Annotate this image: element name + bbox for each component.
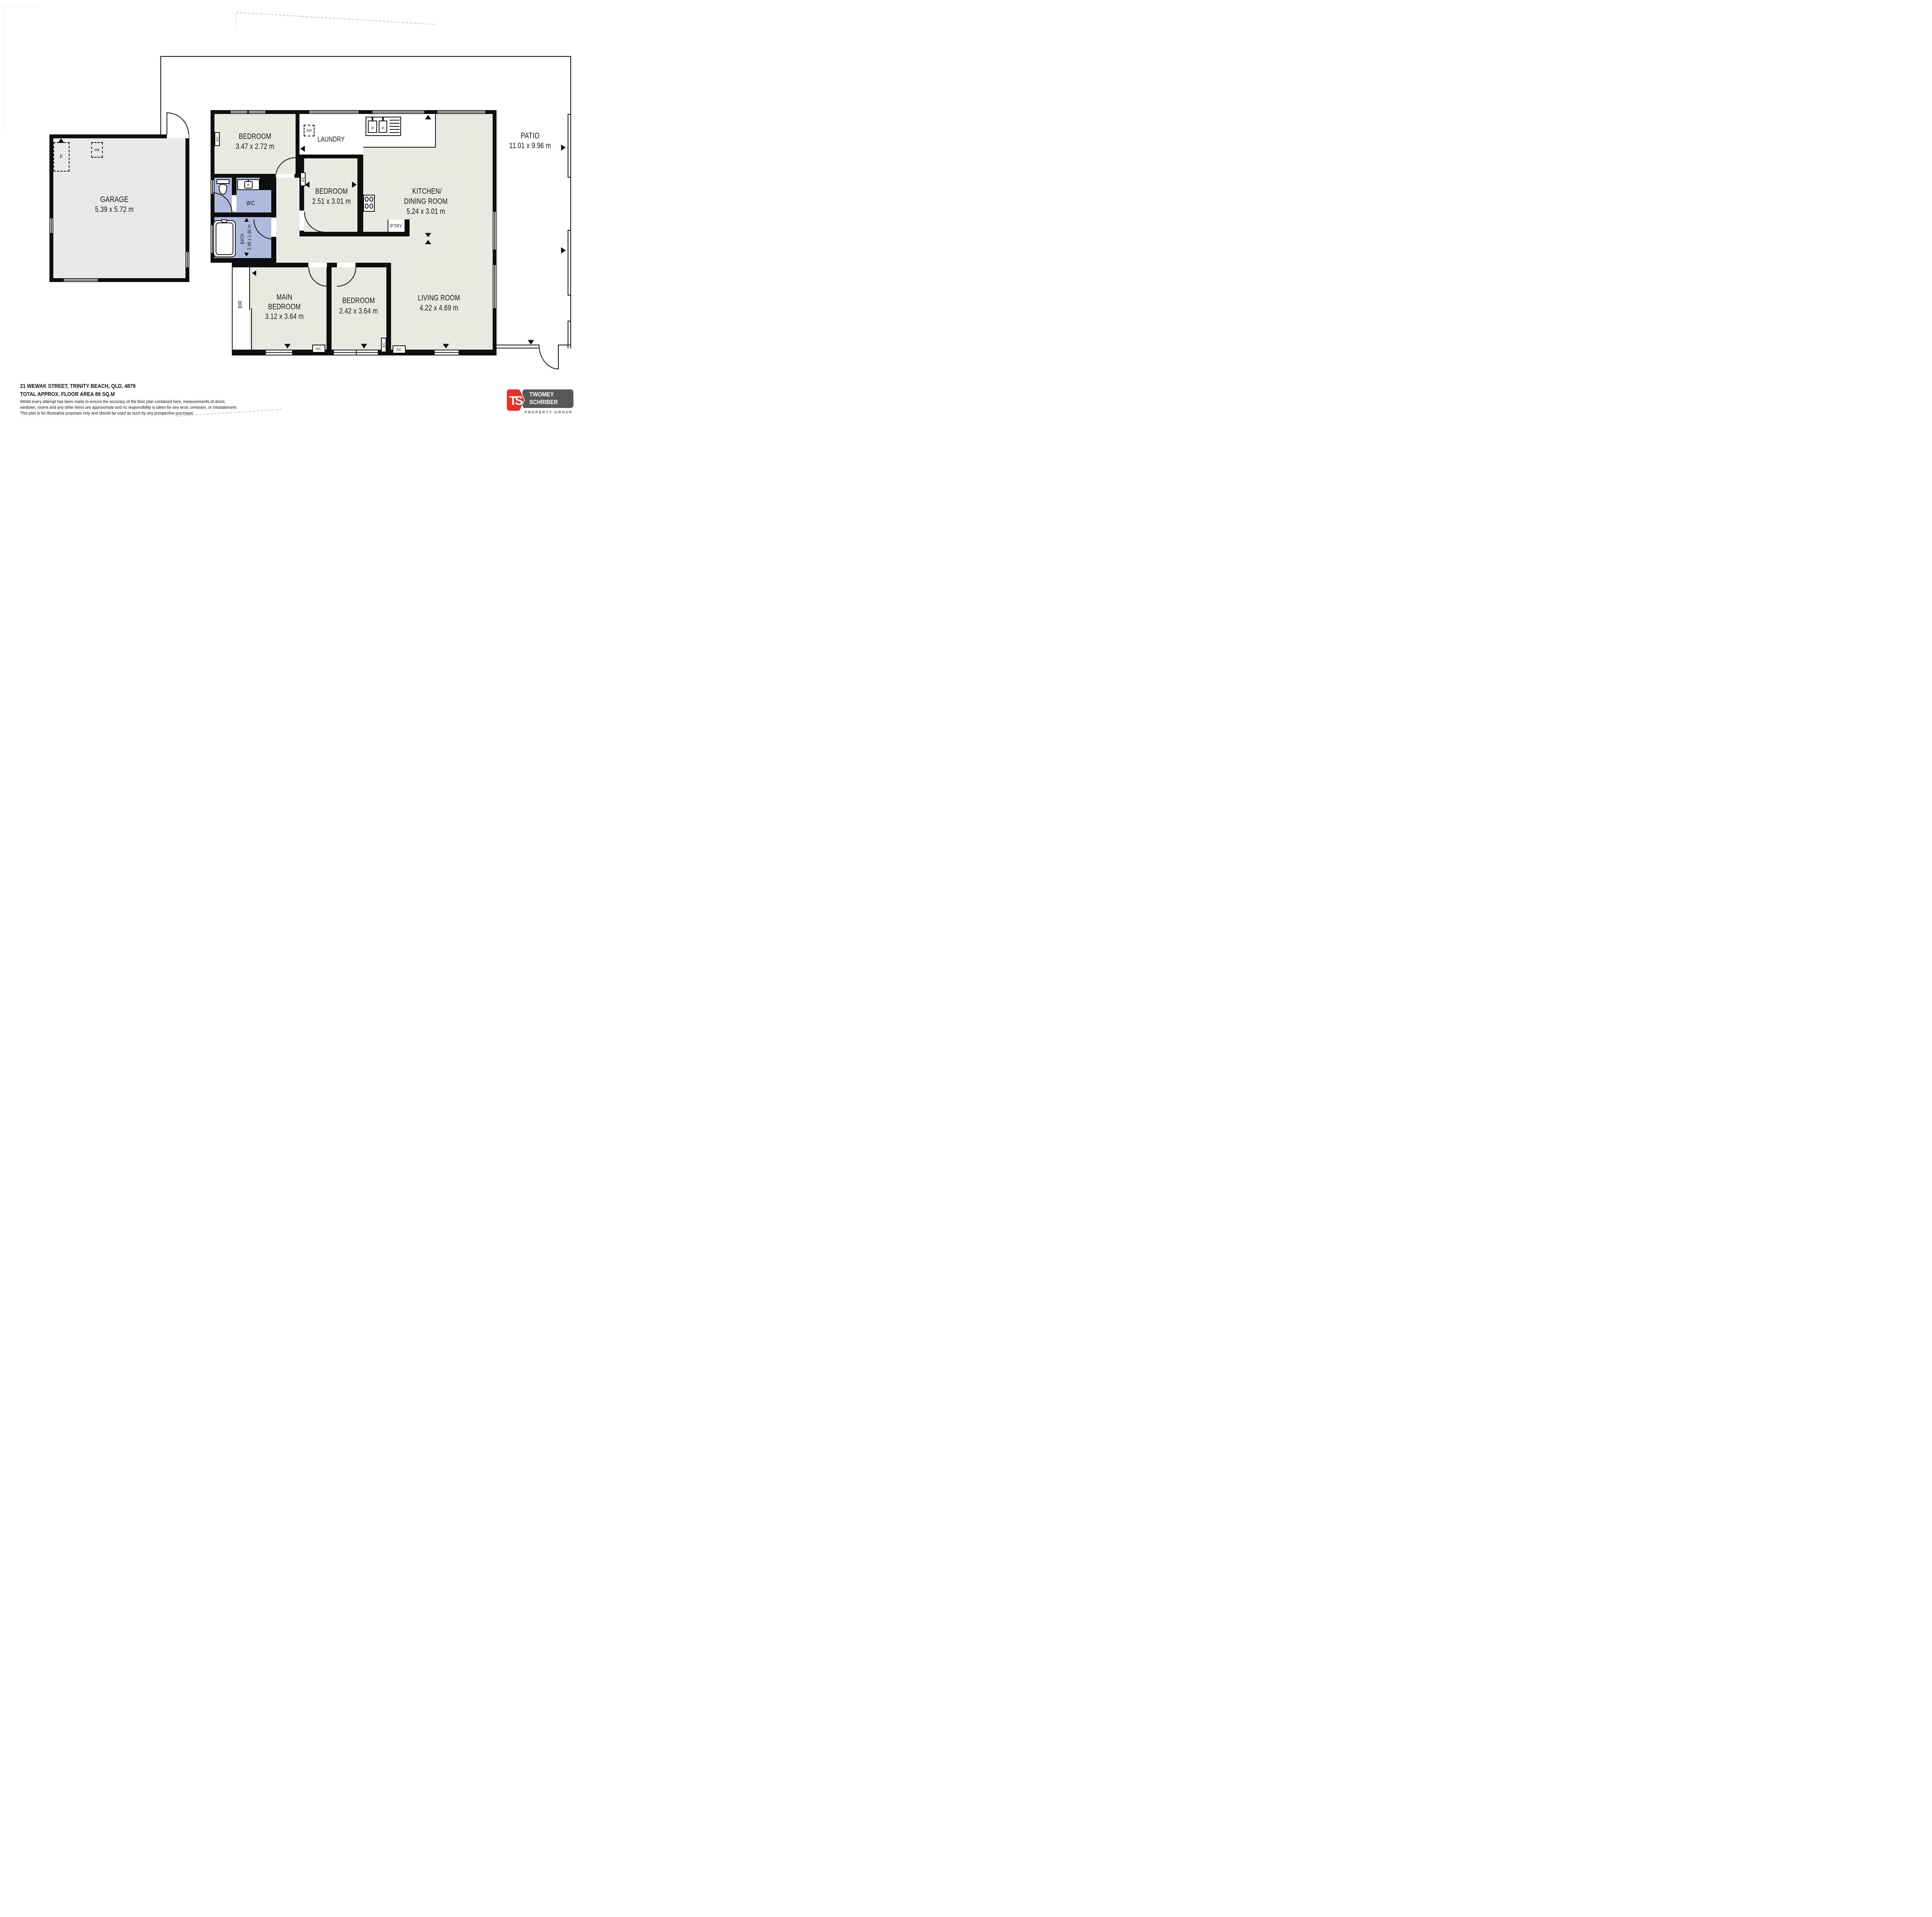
- marker-triangle-left: [300, 146, 305, 152]
- window-tick: [568, 321, 571, 321]
- door-opening: [308, 263, 327, 267]
- patio-outline-top: [160, 56, 571, 57]
- sink-drain-icon: [382, 127, 384, 129]
- boundary-line: [3, 7, 3, 129]
- patio-outline-left: [160, 56, 161, 135]
- bedroom-bottom-dims: 2.42 x 3.64 m: [339, 307, 378, 316]
- marker-triangle-left: [252, 270, 256, 276]
- logo-monogram: TS: [509, 394, 523, 408]
- main-bedroom-name-line1: MAIN: [277, 293, 293, 302]
- patio-rail: [558, 345, 571, 345]
- washing-machine-label: WM: [95, 148, 100, 152]
- window: [372, 110, 424, 114]
- bath-name: BATH: [240, 233, 245, 244]
- floor-area-line: TOTAL APPROX. FLOOR AREA 89 SQ.M: [20, 391, 115, 398]
- vanity-drain-icon: [247, 184, 249, 186]
- wall: [49, 134, 53, 282]
- door-opening: [232, 195, 236, 211]
- ac-label: A/C: [382, 342, 386, 348]
- logo-name-line1: TWOMEY: [529, 391, 554, 398]
- window-tick: [568, 114, 571, 115]
- disclaimer-line: windows, rooms and any other items are a…: [20, 405, 237, 410]
- marker-triangle-down: [528, 340, 534, 345]
- wall: [405, 219, 410, 236]
- washing-machine-label: WM: [307, 129, 312, 133]
- patio-dims: 11.01 x 9.96 m: [509, 142, 551, 151]
- toilet-cistern: [216, 179, 230, 184]
- window: [437, 110, 485, 114]
- wall: [232, 178, 236, 195]
- boundary-line: [236, 12, 236, 30]
- wall: [299, 155, 363, 158]
- ac-unit: A/C: [214, 132, 220, 146]
- vanity-faucet-icon: [248, 179, 249, 182]
- window: [49, 218, 53, 233]
- sink-drainer-icon: [389, 120, 400, 134]
- logo-name-line2: SCHRIBER: [529, 399, 558, 406]
- ac-label: A/C: [301, 177, 305, 182]
- garage-door-leaf: [167, 112, 167, 134]
- ac-unit: A/C: [381, 338, 386, 352]
- window: [309, 110, 359, 114]
- fridge-label: F: [60, 154, 63, 160]
- marker-triangle-up: [425, 240, 431, 244]
- living-dims: 4.22 x 4.69 m: [420, 304, 458, 313]
- window-tick: [568, 230, 571, 231]
- kitchen-name-line2: DINING ROOM: [404, 197, 448, 206]
- ac-unit: A/C: [312, 345, 325, 353]
- window: [185, 252, 189, 267]
- kitchen-dims: 5.24 x 3.01 m: [406, 207, 445, 216]
- wc-name: WC: [247, 200, 255, 207]
- wall: [299, 232, 410, 236]
- bath-dims: 2.46 x 1.60 m: [247, 224, 252, 250]
- sink-faucet-icon: [382, 117, 384, 121]
- patio-window-line: [568, 230, 568, 296]
- window: [231, 110, 247, 114]
- bedroom-bottom-name: BEDROOM: [342, 297, 375, 306]
- sink-drain-icon: [371, 127, 374, 129]
- logo-monogram-tag: TS: [506, 389, 525, 412]
- agency-logo: TWOMEY SCHRIBER TS PROPERTY GROUP: [506, 389, 577, 417]
- window: [64, 278, 98, 282]
- marker-triangle-left: [305, 182, 310, 188]
- wall: [211, 258, 276, 263]
- main-bedroom-name-line2: BEDROOM: [268, 303, 301, 312]
- logo-banner: TWOMEY SCHRIBER: [522, 389, 573, 408]
- garage-dims: 5.39 x 5.72 m: [95, 206, 134, 214]
- burner-icon: [369, 197, 373, 202]
- window: [211, 180, 214, 194]
- window-tick: [568, 177, 571, 178]
- burner-icon: [365, 197, 369, 202]
- burner-icon: [369, 204, 373, 209]
- window-tick: [568, 295, 571, 296]
- kitchen-name-line1: KITCHEN/: [412, 187, 442, 196]
- living-name: LIVING ROOM: [418, 294, 460, 303]
- address-line: 21 WEWAK STREET, TRINITY BEACH, QLD, 487…: [20, 383, 136, 389]
- sink-faucet-icon: [372, 117, 373, 121]
- patio-name: PATIO: [520, 131, 539, 141]
- wall: [211, 212, 276, 217]
- marker-triangle-up: [244, 218, 249, 222]
- window: [249, 110, 265, 114]
- patio-window-line: [568, 114, 568, 178]
- pantry-name: P'TRY: [390, 223, 402, 229]
- door-opening: [337, 263, 355, 267]
- bedroom-top-name: BEDROOM: [239, 133, 271, 141]
- ac-unit: A/C: [393, 345, 406, 353]
- bir-name: BIR: [237, 301, 243, 308]
- bir-closet: [233, 267, 249, 350]
- marker-triangle-down: [443, 344, 449, 348]
- logo-tagline: PROPERTY GROUP: [524, 410, 573, 415]
- boundary-line: [3, 7, 37, 7]
- bir-slider-line: [251, 308, 252, 350]
- bedroom-mid-dims: 2.51 x 3.01 m: [312, 197, 351, 206]
- marker-triangle-down: [361, 344, 367, 348]
- marker-triangle-up: [425, 115, 431, 119]
- disclaimer-line: Whilst every attempt has been made to en…: [20, 399, 226, 404]
- ac-label: A/C: [396, 348, 402, 352]
- wall: [386, 263, 391, 350]
- marker-triangle-right: [352, 182, 357, 188]
- window: [357, 350, 378, 355]
- wall: [296, 110, 299, 178]
- wall: [357, 155, 363, 236]
- house-edge-line: [232, 263, 233, 355]
- window: [493, 212, 497, 250]
- patio-rail: [497, 345, 539, 345]
- marker-triangle-down: [244, 253, 249, 257]
- boundary-dashed-line: [236, 12, 435, 25]
- bir-slider-line: [249, 267, 250, 310]
- marker-triangle-down: [425, 233, 431, 237]
- garage-name: GARAGE: [100, 195, 128, 204]
- main-bedroom-dims: 3.12 x 3.64 m: [265, 313, 304, 321]
- gate-door-arc: [539, 345, 558, 369]
- ac-label: A/C: [215, 136, 219, 142]
- marker-triangle-right: [561, 144, 566, 151]
- ac-label: A/C: [316, 347, 321, 351]
- gate-door-leaf: [558, 345, 559, 369]
- door-opening: [299, 211, 304, 231]
- garage-door-arc: [167, 112, 189, 134]
- patio-rail: [497, 348, 539, 348]
- marker-triangle-right: [561, 247, 566, 253]
- bedroom-top-dims: 3.47 x 2.72 m: [236, 143, 274, 151]
- bedroom-mid-name: BEDROOM: [315, 187, 348, 196]
- door-opening: [167, 134, 189, 138]
- window: [266, 350, 292, 355]
- burner-icon: [365, 204, 369, 209]
- window: [435, 350, 459, 355]
- patio-outline-right: [570, 56, 571, 348]
- marker-triangle-down: [284, 344, 291, 348]
- disclaimer-line: This plan is for illustrative purposes o…: [20, 411, 194, 416]
- laundry-name: LAUNDRY: [318, 136, 345, 144]
- floor-plan-sheet: F WM GARAGE 5.39 x 5.72 m: [0, 0, 597, 422]
- window: [493, 265, 497, 308]
- window: [334, 350, 356, 355]
- bathtub-inner: [216, 223, 233, 255]
- bath-faucet-icon: [221, 219, 227, 223]
